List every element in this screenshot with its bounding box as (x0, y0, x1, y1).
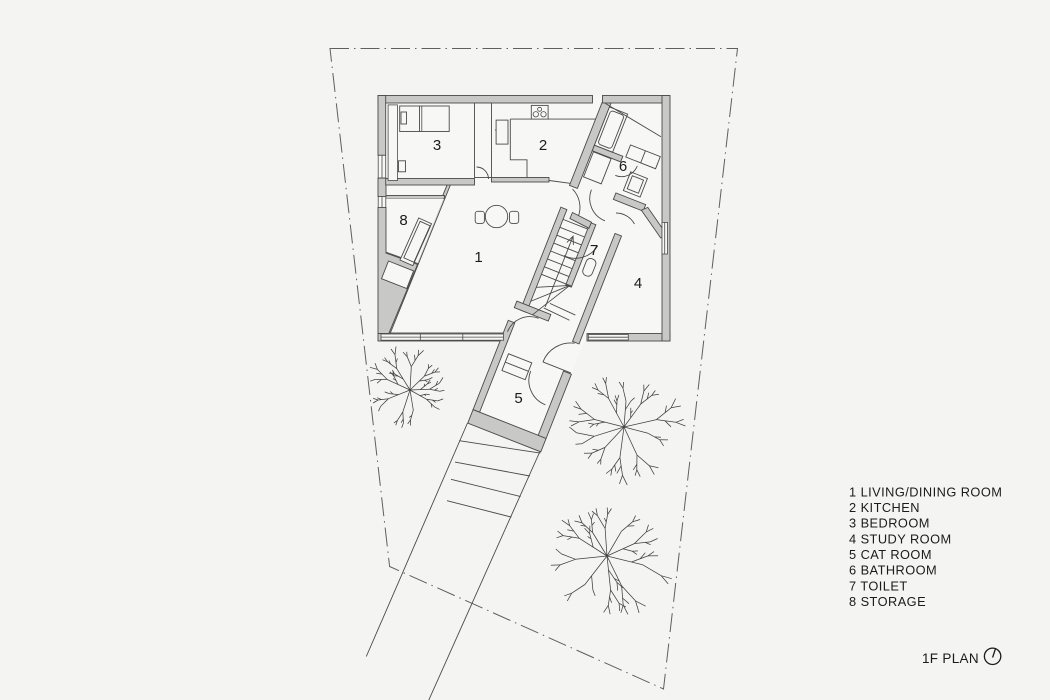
svg-text:3: 3 (433, 137, 441, 154)
svg-text:2: 2 (539, 137, 547, 154)
svg-text:6 BATHROOM: 6 BATHROOM (849, 563, 937, 578)
svg-text:4: 4 (634, 275, 642, 292)
svg-text:7: 7 (590, 242, 598, 259)
svg-text:8 STORAGE: 8 STORAGE (849, 594, 926, 609)
svg-text:1F PLAN: 1F PLAN (922, 651, 979, 666)
svg-text:1 LIVING/DINING ROOM: 1 LIVING/DINING ROOM (849, 484, 1002, 499)
svg-text:7 TOILET: 7 TOILET (849, 578, 908, 593)
svg-text:5 CAT ROOM: 5 CAT ROOM (849, 547, 932, 562)
svg-text:1: 1 (474, 249, 482, 266)
svg-text:3 BEDROOM: 3 BEDROOM (849, 516, 930, 531)
svg-text:2 KITCHEN: 2 KITCHEN (849, 500, 920, 515)
svg-text:8: 8 (399, 212, 407, 229)
svg-text:5: 5 (514, 390, 522, 407)
svg-text:6: 6 (619, 158, 627, 175)
svg-text:4 STUDY ROOM: 4 STUDY ROOM (849, 531, 952, 546)
